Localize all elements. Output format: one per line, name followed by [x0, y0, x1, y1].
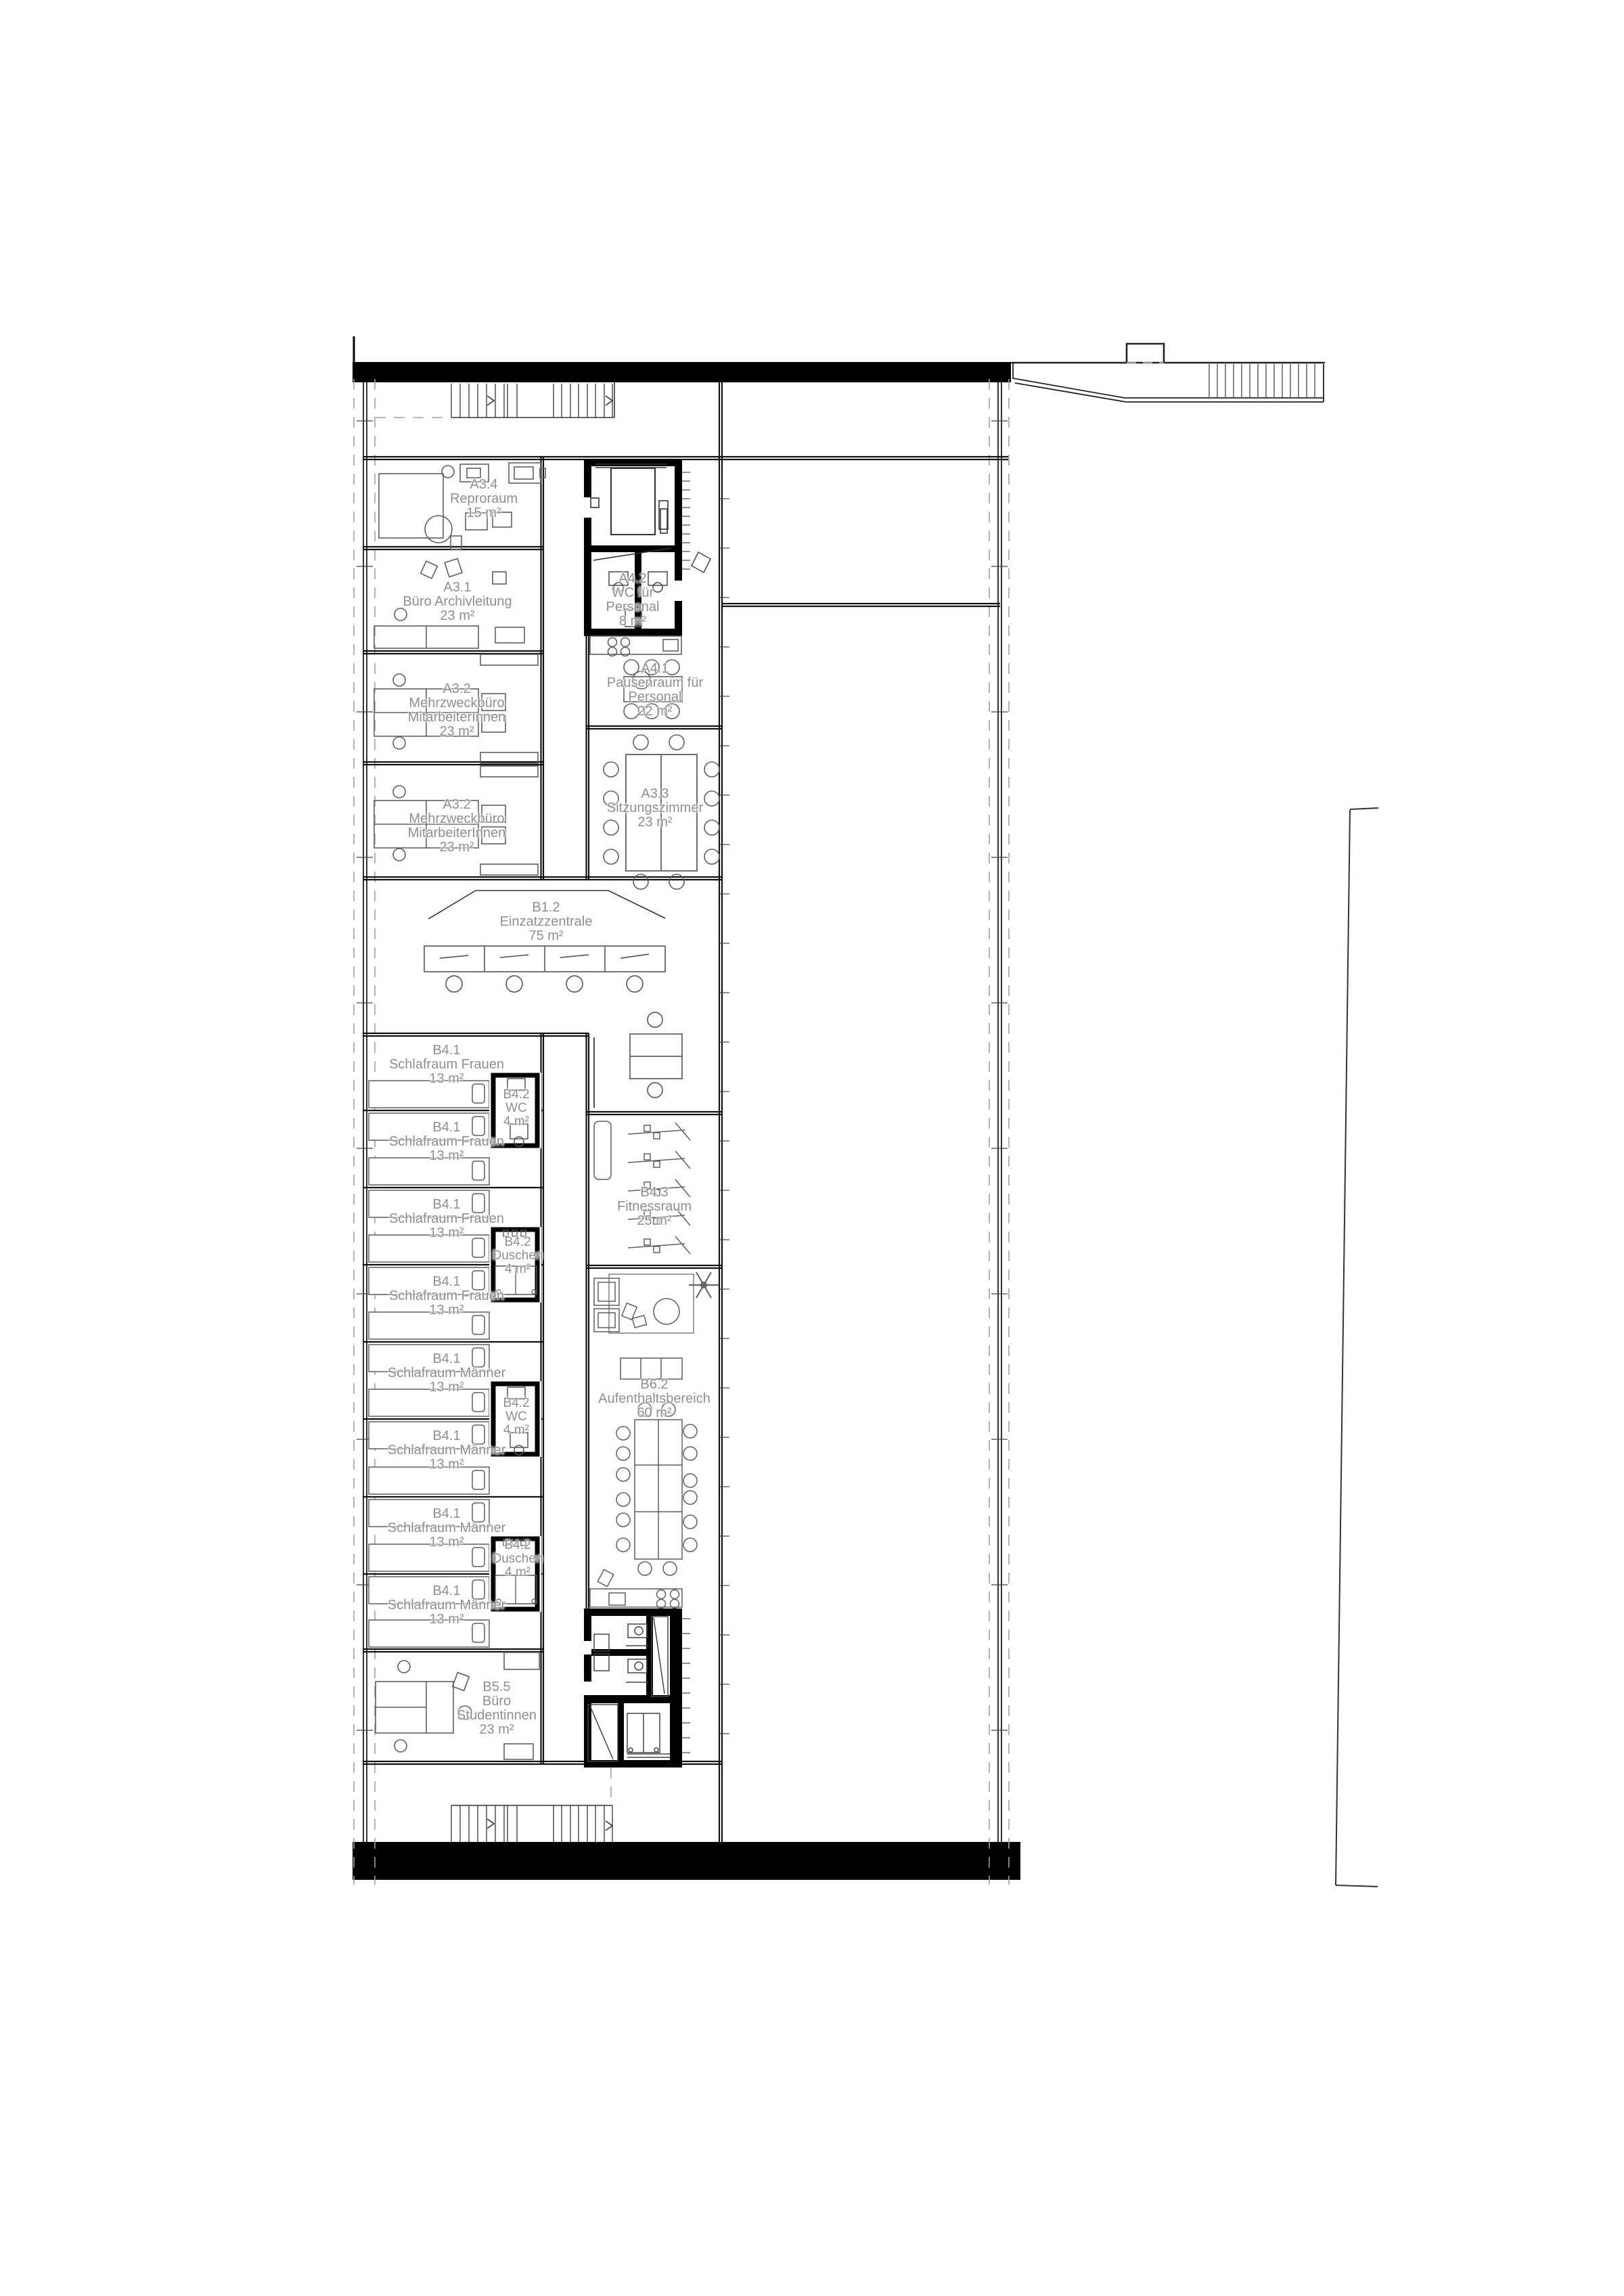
radiator-ticks: [682, 472, 690, 569]
glazed-partition-ticks: [719, 499, 729, 1734]
room-label-b4-2-wc1: B4.2WC4 m²: [503, 1088, 529, 1129]
room-label-b4-1-f1: B4.1Schlafraum Frauen13 m²: [389, 1043, 504, 1086]
lower-core: [584, 1608, 690, 1768]
room-label-b4-3: B4.3Fitnessraum25 m²: [617, 1186, 692, 1228]
room-label-a3-3: A3.3Sitzungszimmer23 m²: [607, 787, 703, 830]
site-boundary-line: [1336, 808, 1378, 1887]
room-label-b4-1-m1: B4.1Schlafraum Männer13 m²: [388, 1352, 506, 1395]
room-label-a4-2: A4.2WC fürPersonal8 m²: [606, 572, 660, 629]
room-label-b5-5: B5.5BüroStudentinnen23 m²: [457, 1680, 537, 1737]
room-label-a4-1: A4.1Pausenraum fürPersonal22 m²: [607, 662, 703, 719]
plan-linework: [0, 0, 1624, 2296]
room-label-b6-2: B6.2Aufenthaltsbereich60 m²: [598, 1378, 710, 1420]
floor-plan-sheet: A3.4Reproraum15 m² A3.1Büro Archivleitun…: [0, 0, 1624, 2296]
person-sketch-icon: [622, 1303, 637, 1320]
room-label-b4-1-m2: B4.1Schlafraum Männer13 m²: [388, 1429, 506, 1472]
person-sketch-icon: [597, 1569, 614, 1586]
room-label-b4-1-f2: B4.1Schlafraum Frauen13 m²: [389, 1121, 504, 1163]
room-label-a3-4: A3.4Reproraum15 m²: [450, 478, 518, 520]
lounge-furniture: [590, 1272, 719, 1608]
bottom-wall: [353, 1842, 1020, 1880]
room-label-b4-1-f4: B4.1Schlafraum Frauen13 m²: [389, 1275, 504, 1318]
room-label-b4-1-m3: B4.1Schlafraum Männer13 m²: [388, 1507, 506, 1550]
room-label-a3-2a: A3.2MehrzweckbüroMitarbeiterInnen23 m²: [408, 682, 506, 739]
room-label-b4-2-du1: B4.2Duschen4 m²: [493, 1236, 543, 1276]
door-swing-icon: [692, 552, 710, 572]
radiator-ticks: [682, 1619, 690, 1753]
top-wall: [353, 362, 1011, 382]
room-label-b4-2-wc2: B4.2WC4 m²: [503, 1397, 529, 1437]
room-label-b4-1-m4: B4.1Schlafraum Männer13 m²: [388, 1584, 506, 1627]
room-label-a3-1: A3.1Büro Archivleitung23 m²: [403, 581, 512, 623]
entry-canopy-ramp: [1011, 344, 1325, 402]
room-label-b1-2: B1.2Einzatzzentrale75 m²: [500, 901, 593, 943]
stairs-bottom: [451, 1805, 612, 1842]
stairs-top: [451, 384, 612, 418]
room-label-b4-1-f3: B4.1Schlafraum Frauen13 m²: [389, 1198, 504, 1240]
room-label-a3-2b: A3.2MehrzweckbüroMitarbeiterInnen23 m²: [408, 798, 506, 855]
